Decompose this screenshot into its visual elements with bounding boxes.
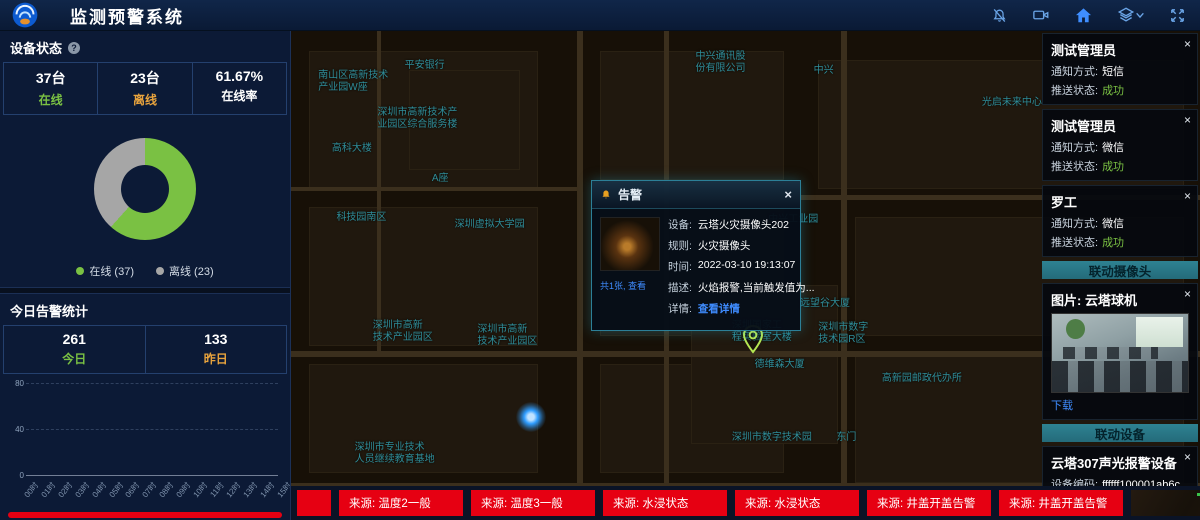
today-alarm-bar-chart: 0408000时01时02时03时04时05时06时07时08时09时10时11… <box>8 376 282 504</box>
map-block <box>600 51 784 180</box>
photo-desk-region <box>1052 361 1188 392</box>
linked-cameras-header[interactable]: 联动摄像头 <box>1042 261 1198 279</box>
stat-label: 在线 <box>4 91 97 108</box>
donut-legend: 在线 (37)离线 (23) <box>0 263 290 279</box>
close-icon[interactable]: × <box>1184 451 1191 463</box>
field-value: 云塔火灾摄像头202 <box>698 217 789 232</box>
notification-card: ×罗工通知方式:微信推送状态:成功 <box>1042 185 1198 257</box>
video-camera-icon[interactable] <box>1032 6 1050 24</box>
photo-window-region <box>1136 317 1182 347</box>
stat-cell: 23台离线 <box>98 63 192 114</box>
field-value: 火焰报警,当前触发值为... <box>698 280 815 295</box>
app-logo-icon <box>12 2 38 28</box>
map-label: 深圳市高新 技术产业园区 <box>373 320 433 344</box>
map-label: 远望谷大厦 <box>800 298 850 310</box>
alarm-field-row: 设备:云塔火灾摄像头202 <box>668 217 792 232</box>
field-value: 成功 <box>1102 237 1124 249</box>
alert-chip[interactable] <box>297 490 331 516</box>
close-icon[interactable]: × <box>784 188 792 201</box>
card-title: 测试管理员 <box>1051 116 1189 135</box>
today-alerts-stats: 261今日133昨日 <box>3 325 287 374</box>
home-icon[interactable] <box>1074 6 1093 25</box>
fullscreen-icon[interactable] <box>1169 7 1186 24</box>
alert-chips: 来源: 温度2一般来源: 温度3一般来源: 水浸状态来源: 水浸状态来源: 井盖… <box>297 490 1123 516</box>
linked-devices-header[interactable]: 联动设备 <box>1042 424 1198 442</box>
map-label: 深圳市数字 技术园R区 <box>818 322 868 346</box>
device-status-section-title: 设备状态 ? <box>0 31 290 62</box>
map-label: 中兴 <box>814 65 834 77</box>
field-value: 火灾摄像头 <box>698 238 751 253</box>
bars-row <box>26 384 278 476</box>
map-label: 深圳市专业技术 人员继续教育基地 <box>355 442 435 466</box>
card-field-row: 通知方式:短信 <box>1051 63 1189 79</box>
monitoring-dashboard: 监测预警系统 <box>0 0 1200 520</box>
blue-dot-marker[interactable] <box>516 402 546 432</box>
page-title: 监测预警系统 <box>70 3 184 28</box>
stat-cell: 133昨日 <box>146 326 287 373</box>
stat-value: 37台 <box>4 68 97 88</box>
device-status-stats: 37台在线23台离线61.67%在线率 <box>3 62 287 115</box>
map-label: 光启未来中心 <box>982 97 1042 109</box>
card-field-row: 推送状态:成功 <box>1051 234 1189 250</box>
map-road <box>291 187 582 191</box>
alarm-snapshot-image[interactable] <box>600 217 660 271</box>
field-value: 短信 <box>1102 66 1124 78</box>
notify-cards: ×测试管理员通知方式:短信推送状态:成功×测试管理员通知方式:微信推送状态:成功… <box>1042 33 1198 257</box>
map-label: 南山区高新技术 产业园W座 <box>318 70 388 94</box>
download-link[interactable]: 下载 <box>1051 397 1189 413</box>
stat-value: 23台 <box>98 68 191 88</box>
alarm-popup-title: 告警 <box>618 186 642 203</box>
legend-item: 离线 (23) <box>156 263 214 279</box>
field-label: 设备编码: <box>1051 479 1098 486</box>
legend-dot-icon <box>156 267 164 275</box>
field-label: 描述: <box>668 280 692 295</box>
map-canvas[interactable]: 南山区高新技术 产业园W座平安银行深圳市高新技术产 业园区综合服务楼高科大楼中兴… <box>291 31 1200 520</box>
y-tick-label: 40 <box>10 425 24 434</box>
alarm-bell-icon <box>600 189 612 201</box>
field-label: 时间: <box>668 259 692 274</box>
map-label: 高科大楼 <box>332 143 372 155</box>
bar-plot: 04080 <box>26 384 278 476</box>
field-label: 通知方式: <box>1051 66 1098 78</box>
card-field-row: 通知方式:微信 <box>1051 139 1189 155</box>
camera-photo-card: × 图片: 云塔球机 下载 <box>1042 283 1198 420</box>
alarm-field-row: 时间:2022-03-10 19:13:07 <box>668 259 792 274</box>
stat-cell: 37台在线 <box>4 63 98 114</box>
map-label: 平安银行 <box>405 60 445 72</box>
alert-chip[interactable]: 来源: 水浸状态 <box>735 490 859 516</box>
right-notify-panel: ×测试管理员通知方式:短信推送状态:成功×测试管理员通知方式:微信推送状态:成功… <box>1042 33 1198 486</box>
camera-photo-label: 图片: 云塔球机 <box>1051 290 1189 309</box>
card-field-row: 推送状态:成功 <box>1051 158 1189 174</box>
alert-chip[interactable]: 来源: 水浸状态 <box>603 490 727 516</box>
legend-label: 离线 (23) <box>169 263 214 279</box>
alarm-field-row: 规则:火灾摄像头 <box>668 238 792 253</box>
y-tick-label: 0 <box>10 471 24 480</box>
y-tick-label: 80 <box>10 379 24 388</box>
camera-snapshot-image[interactable] <box>1051 313 1189 393</box>
notification-card: ×测试管理员通知方式:短信推送状态:成功 <box>1042 33 1198 105</box>
field-value: 2022-03-10 19:13:07 <box>698 259 796 274</box>
today-alerts-section-title: 今日告警统计 <box>0 294 290 325</box>
close-icon[interactable]: × <box>1184 190 1191 202</box>
top-header: 监测预警系统 <box>0 0 1200 31</box>
map-label: 高新园邮政代办所 <box>882 373 962 385</box>
card-field-row: 推送状态:成功 <box>1051 82 1189 98</box>
stat-label: 离线 <box>98 91 191 108</box>
map-label: 深圳市高新 技术产业园区 <box>477 324 537 348</box>
legend-item: 在线 (37) <box>76 263 134 279</box>
alarm-field-row: 详情:查看详情 <box>668 301 792 316</box>
map-road <box>841 31 847 520</box>
field-value: 成功 <box>1102 85 1124 97</box>
view-details-link[interactable]: 查看详情 <box>698 301 740 316</box>
field-label: 详情: <box>668 301 692 316</box>
stat-cell: 61.67%在线率 <box>193 63 286 114</box>
card-field-row: 通知方式:微信 <box>1051 215 1189 231</box>
notification-card: ×测试管理员通知方式:微信推送状态:成功 <box>1042 109 1198 181</box>
photo-plant-region <box>1066 319 1085 339</box>
alarm-field-row: 描述:火焰报警,当前触发值为... <box>668 280 792 295</box>
chevron-down-icon <box>1135 10 1145 20</box>
map-label: 深圳市数字技术园 <box>732 432 812 444</box>
stat-value: 133 <box>146 331 287 347</box>
alarm-fields: 设备:云塔火灾摄像头202规则:火灾摄像头时间:2022-03-10 19:13… <box>668 217 792 322</box>
alert-chip[interactable]: 来源: 温度3一般 <box>471 490 595 516</box>
field-value: ffffff100001ab6c <box>1102 479 1180 486</box>
field-label: 设备: <box>668 217 692 232</box>
linked-device-cards: ×云塔307声光报警设备设备编码:ffffff100001ab6c调用服务:报警… <box>1042 446 1198 486</box>
map-label: 东门 <box>836 432 856 444</box>
alarm-snapshot-caption[interactable]: 共1张, 查看 <box>600 279 660 292</box>
alarm-popup-body: 共1张, 查看 设备:云塔火灾摄像头202规则:火灾摄像头时间:2022-03-… <box>592 209 800 330</box>
device-status-donut-chart <box>0 115 290 263</box>
card-title: 罗工 <box>1051 192 1189 211</box>
map-label: 深圳市高新技术产 业园区综合服务楼 <box>377 107 457 131</box>
header-toolbar <box>991 0 1186 30</box>
alarm-thumb-col: 共1张, 查看 <box>600 217 660 322</box>
stat-value: 261 <box>4 331 145 347</box>
map-road <box>577 31 583 520</box>
stat-label: 在线率 <box>193 87 286 104</box>
stat-label: 今日 <box>4 350 145 367</box>
stat-cell: 261今日 <box>4 326 146 373</box>
map-label: 中兴通讯股 份有限公司 <box>696 51 746 75</box>
field-label: 通知方式: <box>1051 218 1098 230</box>
alarm-popup-header: 告警 × <box>592 181 800 209</box>
x-tick-label: 15时 <box>275 480 291 505</box>
alert-chip[interactable]: 来源: 温度2一般 <box>339 490 463 516</box>
map-label: 德维森大厦 <box>755 359 805 371</box>
notification-card: ×云塔307声光报警设备设备编码:ffffff100001ab6c调用服务:报警… <box>1042 446 1198 486</box>
map-label: 深圳虚拟大学园 <box>455 219 525 231</box>
field-value: 微信 <box>1102 218 1124 230</box>
card-title: 测试管理员 <box>1051 40 1189 59</box>
help-icon[interactable]: ? <box>68 42 80 54</box>
field-label: 推送状态: <box>1051 85 1098 97</box>
map-label: 科技园南区 <box>336 212 386 224</box>
alert-chip[interactable]: 来源: 井盖开盖告警 <box>999 490 1123 516</box>
field-value: 成功 <box>1102 161 1124 173</box>
field-label: 推送状态: <box>1051 237 1098 249</box>
alarm-popup: 告警 × 共1张, 查看 设备:云塔火灾摄像头202规则:火灾摄像头时间:202… <box>591 180 801 331</box>
legend-dot-icon <box>76 267 84 275</box>
left-stats-panel: 设备状态 ? 37台在线23台离线61.67%在线率 在线 (37)离线 (23… <box>0 31 291 520</box>
alert-chip[interactable]: 来源: 井盖开盖告警 <box>867 490 991 516</box>
legend-label: 在线 (37) <box>89 263 134 279</box>
close-icon[interactable]: × <box>1184 38 1191 50</box>
photo-desk-region <box>1063 347 1158 359</box>
field-label: 推送状态: <box>1051 161 1098 173</box>
layers-icon[interactable] <box>1117 6 1145 24</box>
section-divider <box>0 287 290 294</box>
alert-ticker-bar: 来源: 温度2一般来源: 温度3一般来源: 水浸状态来源: 水浸状态来源: 井盖… <box>291 486 1200 520</box>
field-label: 通知方式: <box>1051 142 1098 154</box>
close-icon[interactable]: × <box>1184 288 1191 300</box>
stat-label: 昨日 <box>146 350 287 367</box>
unhandled-progress-bar <box>8 512 282 518</box>
field-value: 微信 <box>1102 142 1124 154</box>
card-title: 云塔307声光报警设备 <box>1051 453 1189 472</box>
card-field-row: 设备编码:ffffff100001ab6c <box>1051 476 1189 486</box>
bell-off-icon[interactable] <box>991 7 1008 24</box>
field-label: 规则: <box>668 238 692 253</box>
close-icon[interactable]: × <box>1184 114 1191 126</box>
stat-value: 61.67% <box>193 68 286 84</box>
map-label: A座 <box>432 173 449 185</box>
x-tick-labels: 00时01时02时03时04时05时06时07时08时09时10时11时12时1… <box>26 480 278 502</box>
camera-video-thumbnail[interactable] <box>1131 490 1200 516</box>
